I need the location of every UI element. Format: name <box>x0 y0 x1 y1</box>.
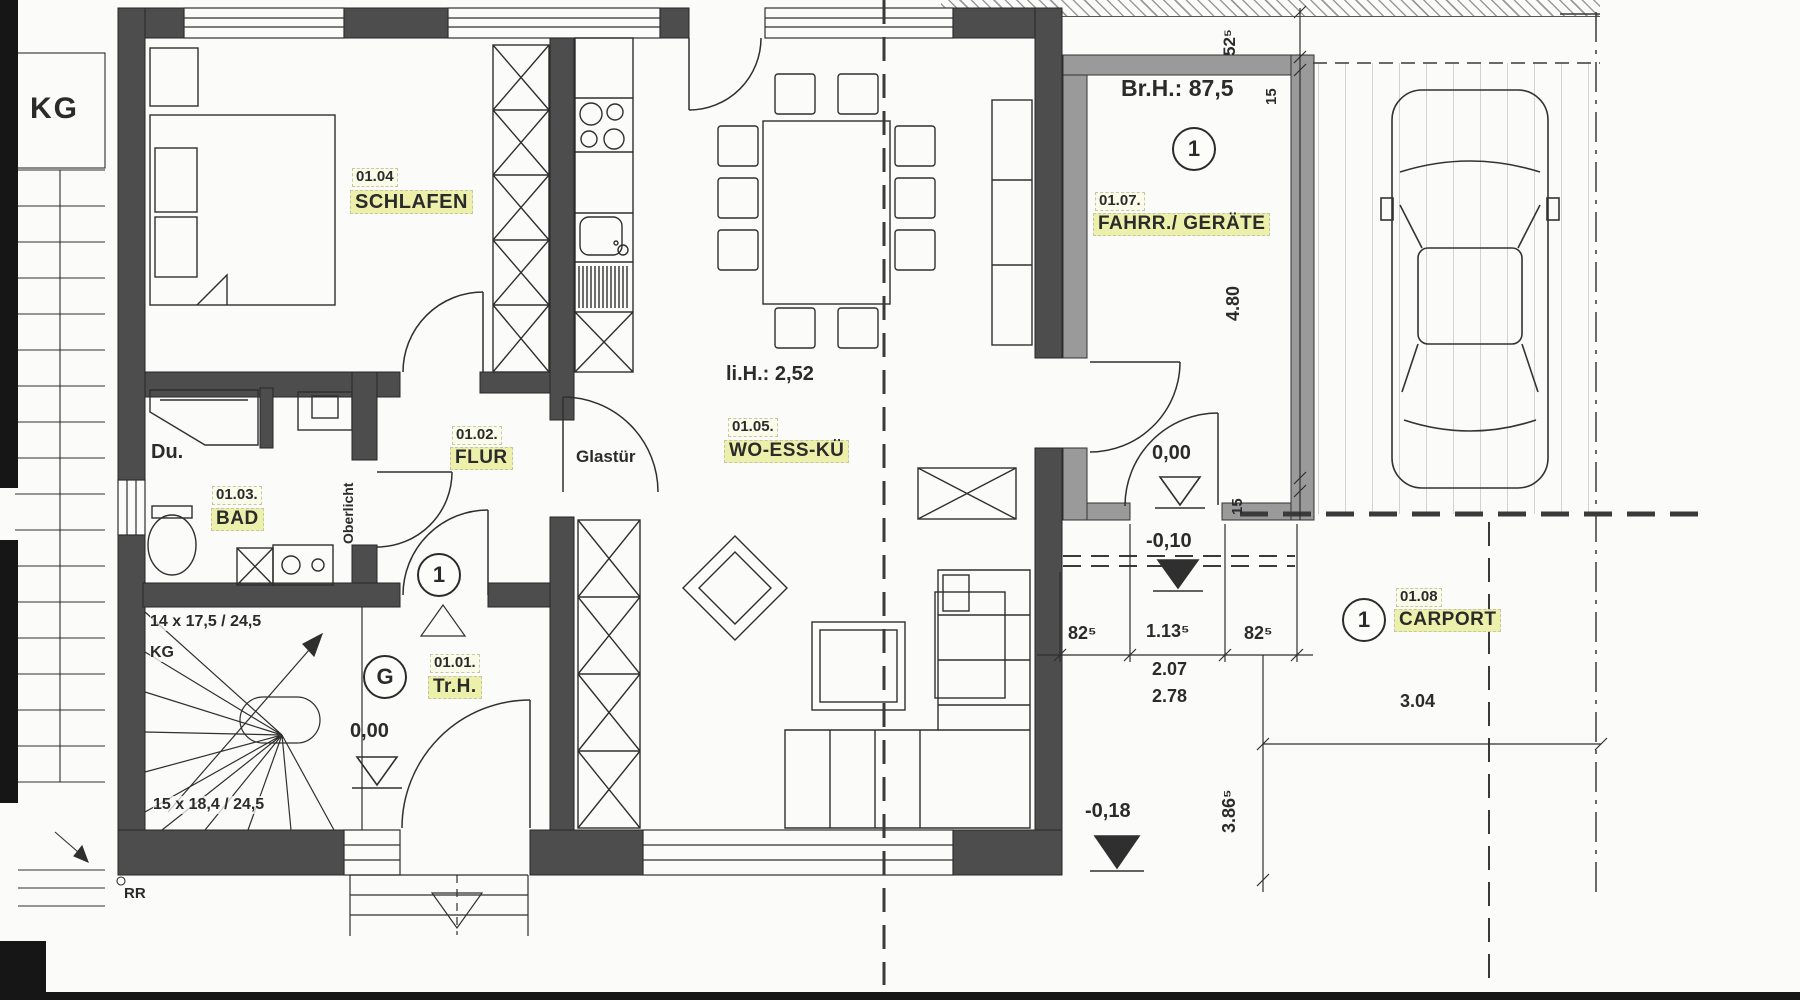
scan-edge-left-top <box>0 0 18 488</box>
trh-name: Tr.H. <box>428 676 482 699</box>
sofa <box>785 570 1030 828</box>
bad-code: 01.03. <box>212 486 262 505</box>
dimension-lines <box>1037 6 1607 892</box>
bed <box>150 48 335 305</box>
flur-code: 01.02. <box>452 426 502 445</box>
carport-code: 01.08 <box>1396 588 1442 607</box>
dim-82-right: 82⁵ <box>1244 624 1272 644</box>
wohnen-code: 01.05. <box>728 418 778 437</box>
rr-marker <box>117 877 125 885</box>
geraete-name: FAHRR./ GERÄTE <box>1093 213 1270 236</box>
scan-edge-bottom <box>0 992 1800 1000</box>
stair-kg-text: KG <box>150 644 174 662</box>
chair <box>775 308 815 348</box>
level-vorgarage-text: -0,10 <box>1146 530 1192 552</box>
level-markers <box>352 477 1205 871</box>
dim-113: 1.13⁵ <box>1146 622 1190 642</box>
glastuer-label: Glastür <box>576 448 636 467</box>
tv-board <box>935 592 1005 698</box>
dim-386: 3.86⁵ <box>1219 790 1240 834</box>
lichte-hoehe-label: li.H.: 2,52 <box>726 363 814 385</box>
circle-1-carport: 1 <box>1342 598 1386 642</box>
rr-label: RR <box>124 886 146 903</box>
stove-burner <box>604 129 624 149</box>
carport-name: CARPORT <box>1394 609 1501 632</box>
level-open-garage <box>1160 477 1200 505</box>
circle-1-trh: 1 <box>417 553 461 597</box>
dim-207: 2.07 <box>1152 660 1187 680</box>
floorplan-canvas: KG 01.04 SCHLAFEN 01.02. FLUR Glastür li… <box>0 0 1800 1000</box>
chair <box>895 126 935 166</box>
geraete-code: 01.07. <box>1095 192 1145 211</box>
living-furniture <box>578 468 1030 828</box>
chair <box>895 178 935 218</box>
dim-15-bottom: 15 <box>1229 498 1246 515</box>
bruestung-label: Br.H.: 87,5 <box>1121 76 1234 101</box>
stove-burner <box>581 131 597 147</box>
dim-480: 4.80 <box>1223 286 1244 321</box>
doors <box>377 38 1218 828</box>
dim-15-top: 15 <box>1263 88 1280 105</box>
circle-1-garage: 1 <box>1172 127 1216 171</box>
cistern <box>298 392 352 430</box>
schlafen-name: SCHLAFEN <box>350 190 473 214</box>
wc-bowl <box>148 515 196 575</box>
faucet <box>618 245 628 255</box>
triangle-symbol <box>421 605 465 636</box>
shower-tray <box>150 390 258 445</box>
stove-burner <box>607 104 623 120</box>
kg-room-label: KG <box>30 92 79 125</box>
kitchen-counter <box>575 38 633 372</box>
level-garage-text: 0,00 <box>1152 442 1191 464</box>
dim-82-left: 82⁵ <box>1068 624 1096 644</box>
wohnen-name: WO-ESS-KÜ <box>724 440 849 463</box>
dim-304: 3.04 <box>1400 692 1435 712</box>
chair <box>718 230 758 270</box>
stove-burner <box>580 103 602 125</box>
trh-code: 01.01. <box>430 654 480 673</box>
chair <box>775 74 815 114</box>
level-terrasse-text: -0,18 <box>1085 800 1131 822</box>
chair <box>718 178 758 218</box>
level-filled-vorgarage <box>1158 560 1198 588</box>
terrace-steps <box>350 875 528 936</box>
dusche-label: Du. <box>151 441 183 463</box>
dim-278: 2.78 <box>1152 687 1187 707</box>
level-trh-text: 0,00 <box>350 720 389 742</box>
flur-name: FLUR <box>450 447 513 470</box>
scan-edge-left-mid <box>0 540 18 803</box>
wc-tank <box>152 506 192 518</box>
oberlicht-label: Oberlicht <box>340 483 356 544</box>
level-open-trh <box>357 757 397 785</box>
floorplan-linework <box>0 0 1800 1000</box>
circle-g-trh: G <box>363 655 407 699</box>
stair-kg <box>15 53 125 906</box>
dim-52: 52⁵ <box>1220 29 1240 56</box>
bad-name: BAD <box>211 508 264 531</box>
stair-lower-text: 15 x 18,4 / 24,5 <box>153 796 264 814</box>
chair <box>838 308 878 348</box>
side-table <box>812 622 905 710</box>
chair <box>838 74 878 114</box>
sink <box>580 217 622 255</box>
chair <box>718 126 758 166</box>
chair <box>895 230 935 270</box>
schlafen-code: 01.04 <box>352 168 398 187</box>
dining-set <box>718 74 1032 348</box>
stair-upper-text: 14 x 17,5 / 24,5 <box>150 613 261 631</box>
sideboard <box>992 100 1032 345</box>
wardrobe <box>493 45 549 372</box>
drainboard <box>579 266 627 308</box>
car <box>1381 90 1559 488</box>
level-filled-terrasse <box>1095 836 1139 868</box>
dining-table <box>763 121 890 304</box>
